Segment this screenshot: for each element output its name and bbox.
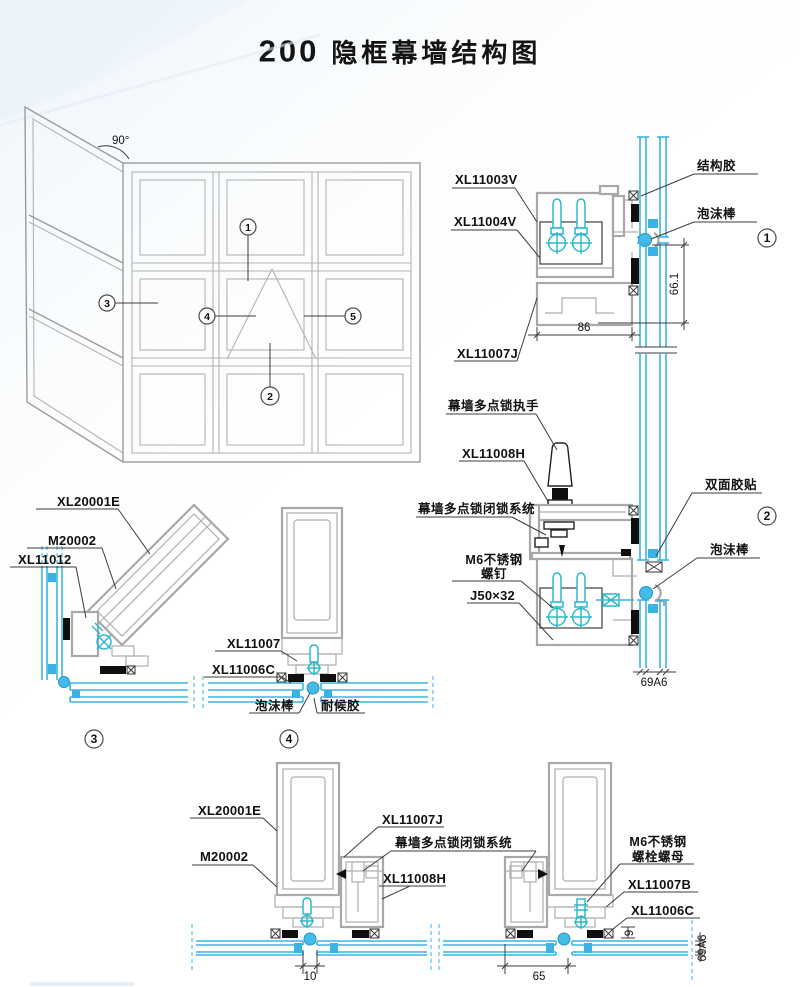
label-xl11012-text: XL11012: [18, 552, 71, 567]
angle-label: 90°: [112, 135, 129, 147]
label-lock-system-text: 幕墙多点锁闭锁系统: [394, 835, 512, 850]
detail-1-marker: 1: [758, 229, 776, 247]
foam-rod-icon: [558, 933, 570, 945]
label-xl11008h-text: XL11008H: [383, 871, 446, 886]
dimension-65: 65: [497, 944, 576, 983]
detail-2-marker: 2: [758, 507, 776, 525]
label-m20002-text: M20002: [48, 533, 96, 548]
detail-2-drawing: 69A6 幕墙多点锁执手 XL11008H 幕墙多点锁闭锁系统 M: [416, 353, 776, 689]
gasket: [631, 518, 639, 544]
label-xl11004v-text: XL11004V: [454, 214, 516, 229]
label-xl11007b-text: XL11007B: [628, 877, 691, 892]
label-handle-text: 幕墙多点锁执手: [447, 398, 539, 413]
label-m6-line2-text: 螺栓螺母: [632, 849, 684, 864]
detail-4-marker: 4: [280, 730, 298, 748]
angle-annotation: 90°: [98, 135, 129, 159]
lock-handle-icon: [548, 443, 572, 511]
label-weather-sealant: 耐候胶: [314, 698, 365, 713]
gasket: [631, 610, 639, 634]
dim-nine-text: 9: [624, 930, 636, 936]
sealant-x-icon: [646, 562, 662, 572]
label-xl11008h: XL11008H: [379, 871, 446, 899]
lock-mechanism-icon: [535, 522, 574, 557]
dimension-glass-69a6: 69A6: [695, 932, 709, 962]
sealant-x-icon: [506, 929, 515, 938]
marker-4-number: 4: [204, 311, 210, 323]
sealant-x-icon: [629, 286, 638, 295]
detail-1-marker-number: 1: [764, 231, 771, 245]
screw-icon: [300, 898, 314, 928]
label-xl11007j: XL11007J: [454, 298, 537, 361]
label-foam-rod-text: 泡沫棒: [697, 206, 736, 221]
dim-glass-text: 69A6: [697, 935, 709, 962]
detail-5-drawing: 10 65 9 69A6: [190, 763, 709, 983]
gasket: [320, 674, 336, 682]
glass-unit-horizontal: [70, 676, 203, 710]
marker-5-number: 5: [350, 311, 356, 323]
dim-height-text: 66.1: [669, 273, 681, 295]
sealant-x-icon: [629, 506, 638, 515]
elevation-marker-1: 1: [240, 219, 256, 281]
gasket: [631, 204, 639, 222]
structure-diagram: 90° 1 2 3 4: [0, 0, 800, 987]
gasket: [587, 930, 603, 938]
detail-2-marker-number: 2: [764, 509, 771, 523]
label-xl11006c-text: XL11006C: [631, 903, 694, 918]
sealant-x-icon: [271, 929, 280, 938]
label-lock-system-text: 幕墙多点锁闭锁系统: [417, 501, 535, 516]
glass-unit-top: [637, 137, 669, 237]
label-m6-line2-text: 螺钉: [481, 566, 507, 581]
label-m6-line1-text: M6不锈钢: [629, 834, 686, 849]
lock-profile-right: [505, 857, 548, 927]
screw-icon: [307, 645, 321, 675]
label-m20002-text: M20002: [200, 849, 248, 864]
detail-3-marker-number: 3: [91, 732, 98, 746]
detail-4-drawing: XL11007 XL11006C 泡沫棒 耐候胶 4: [204, 508, 433, 748]
label-xl11007: XL11007: [215, 636, 297, 661]
dim-width-text: 86: [578, 322, 591, 334]
sealant-x-icon: [604, 929, 613, 938]
detail-3-marker: 3: [85, 730, 103, 748]
label-m20002: M20002: [192, 849, 277, 887]
foam-rod-icon: [307, 682, 319, 694]
glass-unit-bottom: [637, 600, 669, 668]
glass-unit-middle: [637, 353, 669, 560]
label-foam-rod-text: 泡沫棒: [255, 698, 294, 713]
label-handle: 幕墙多点锁执手: [446, 398, 557, 450]
dim-glass-text: 69A6: [641, 677, 668, 689]
sealant-x-icon: [338, 673, 347, 682]
foam-rod-icon: [304, 933, 316, 945]
elevation-marker-3: 3: [99, 295, 158, 311]
double-tape-spacer: [648, 549, 658, 558]
glass-row: [192, 920, 692, 980]
gasket: [631, 258, 639, 284]
vent-frame-profile: [530, 505, 632, 559]
label-xl11007j-text: XL11007J: [457, 346, 518, 361]
foam-rod-icon: [59, 677, 70, 688]
label-foam-rod: 泡沫棒: [653, 542, 760, 589]
elevation-drawing: 90° 1 2 3 4: [25, 107, 420, 462]
gasket: [352, 930, 369, 938]
label-double-tape-text: 双面胶贴: [704, 477, 757, 492]
label-xl11006c-text: XL11006C: [212, 662, 275, 677]
label-xl11007-text: XL11007: [227, 636, 280, 651]
detail-4-marker-number: 4: [286, 732, 293, 746]
label-foam-rod: 泡沫棒: [651, 206, 757, 239]
gasket: [517, 930, 533, 938]
label-xl20001e: XL20001E: [190, 803, 277, 831]
label-xl11012: XL11012: [10, 552, 86, 618]
label-foam-rod: 泡沫棒: [249, 693, 310, 713]
label-foam-rod-text: 泡沫棒: [710, 542, 749, 557]
sealant-x-icon: [629, 636, 638, 645]
vent-triangle: [227, 269, 316, 359]
label-xl11008h: XL11008H: [459, 446, 549, 503]
label-weather-sealant-text: 耐候胶: [321, 698, 360, 713]
dimension-glass-69a6: 69A6: [633, 669, 676, 689]
dimension-9: 9: [621, 927, 636, 938]
label-xl11008h-text: XL11008H: [462, 446, 525, 461]
bolt-icon: [574, 899, 588, 929]
label-xl11004v: XL11004V: [451, 214, 540, 258]
label-xl20001e-text: XL20001E: [57, 494, 120, 509]
structural-sealant-icon: [629, 191, 638, 200]
label-lock-system: 幕墙多点锁闭锁系统: [416, 501, 546, 535]
label-xl11003v-text: XL11003V: [455, 172, 517, 187]
elevation-front-grid: [123, 163, 420, 462]
label-xl20001e-text: XL20001E: [198, 803, 261, 818]
sealant-x-icon: [370, 929, 379, 938]
marker-2-number: 2: [267, 391, 273, 403]
label-xl11006c: XL11006C: [613, 903, 700, 929]
label-j50-text: J50×32: [470, 588, 515, 603]
dim-width-text: 65: [533, 971, 546, 983]
sealant-x-icon: [127, 666, 135, 674]
foam-rod-icon: [639, 233, 659, 248]
drawing-page: 200隐框幕墙结构图: [0, 0, 800, 987]
label-structural-sealant: 结构胶: [641, 158, 758, 196]
marker-1-number: 1: [245, 222, 251, 234]
dim-gap-text: 10: [304, 971, 317, 983]
gasket: [282, 930, 298, 938]
elevation-side-wall: [25, 107, 123, 462]
label-m6-line1-text: M6不锈钢: [465, 552, 522, 567]
gasket: [288, 674, 304, 682]
detail-1-drawing: 86 66.1 XL11003V XL11004V: [451, 137, 776, 361]
label-structural-sealant-text: 结构胶: [697, 158, 736, 173]
glass-unit-vent: [635, 243, 677, 353]
glazed-sash-diagonal: [88, 505, 228, 645]
marker-3-number: 3: [104, 298, 110, 310]
background-decor: [0, 0, 320, 986]
label-xl11007j: XL11007J: [344, 812, 444, 857]
detail-3-drawing: XL20001E M20002 XL11012 3: [10, 494, 228, 748]
label-xl11007j-text: XL11007J: [382, 812, 443, 827]
lock-profile-left: [336, 857, 383, 927]
gasket: [621, 549, 631, 556]
